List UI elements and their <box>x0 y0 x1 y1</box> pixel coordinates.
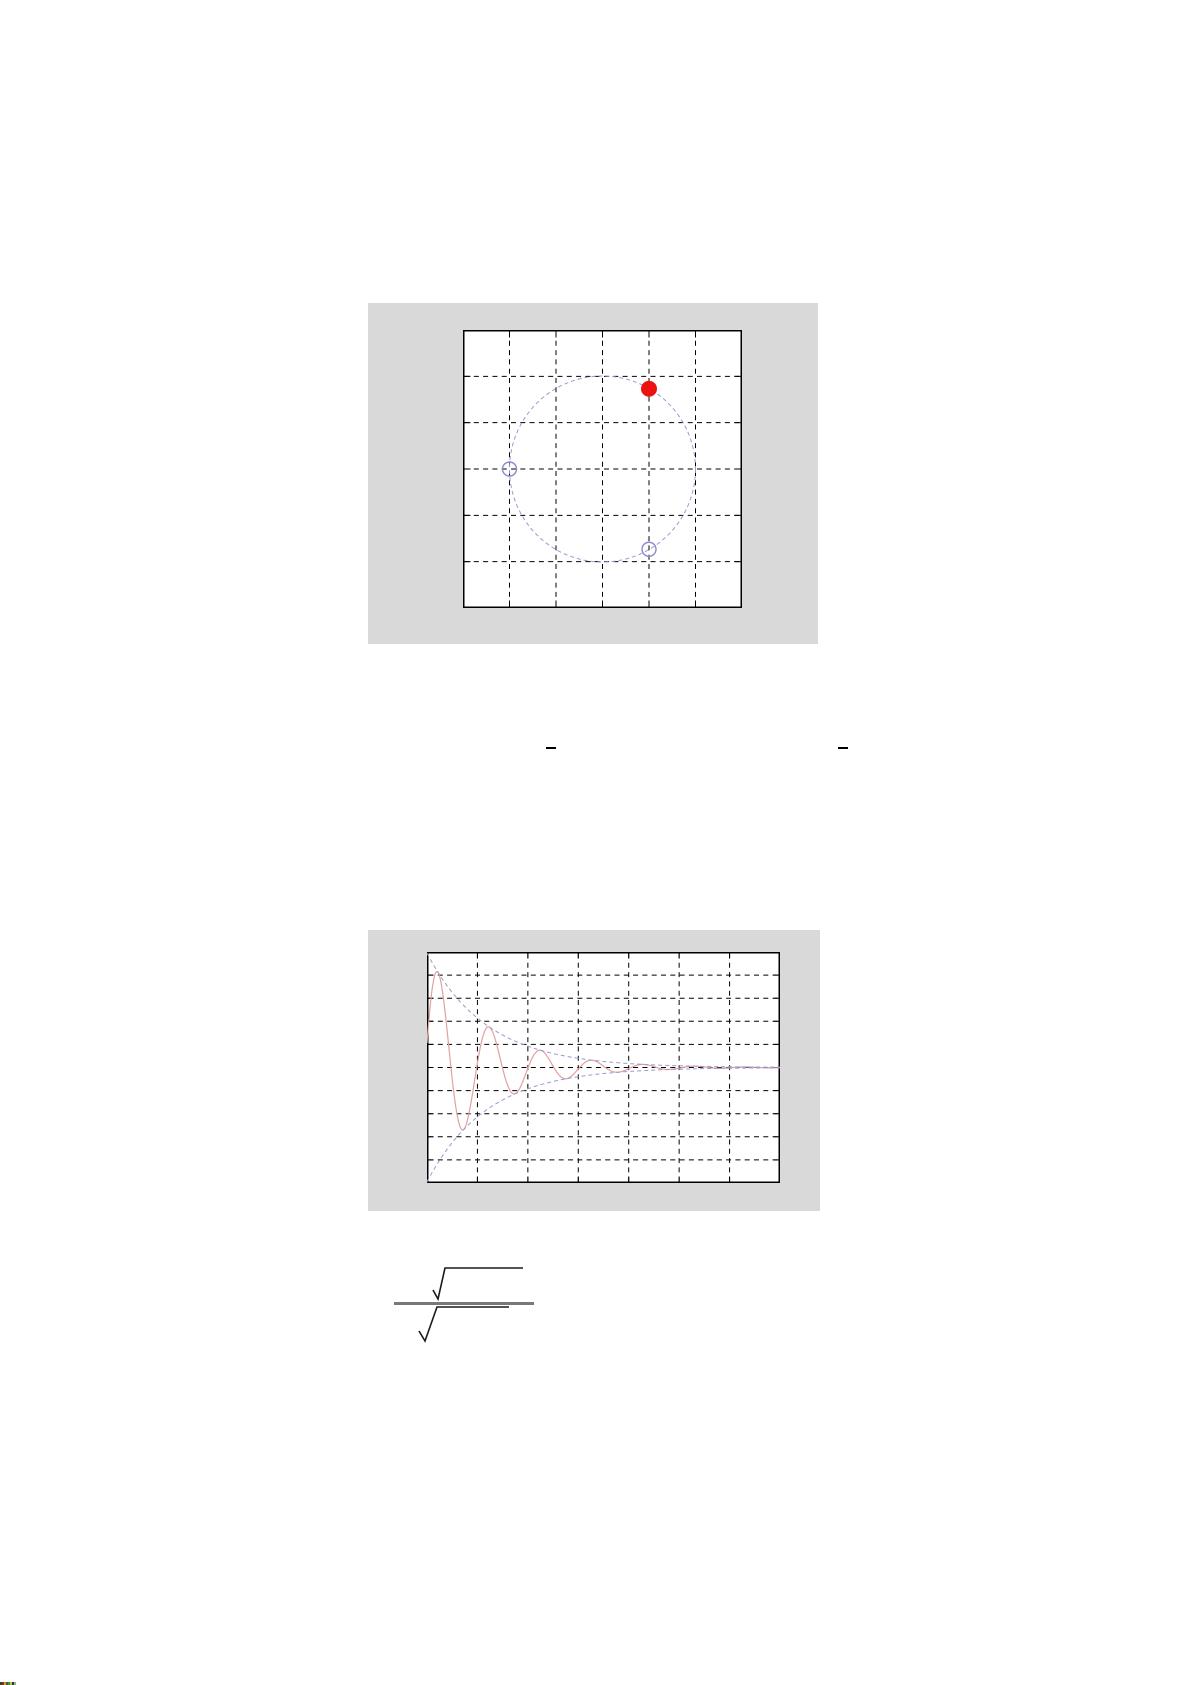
equation-minus-fragment-2 <box>838 747 848 749</box>
equation-minus-fragment-1 <box>546 747 556 749</box>
fraction-bar <box>394 1302 534 1305</box>
pole-zero-plot <box>463 330 742 608</box>
numerator-radical <box>433 1268 523 1299</box>
figure-impulse-response-panel <box>368 930 820 1211</box>
pole-marker <box>642 381 657 396</box>
impulse-response-plot <box>427 952 780 1183</box>
denominator-radical <box>419 1307 509 1341</box>
fraction-sqrt-formula <box>388 1258 548 1353</box>
document-page <box>0 0 1191 1685</box>
figure-pole-zero-panel <box>368 303 818 644</box>
